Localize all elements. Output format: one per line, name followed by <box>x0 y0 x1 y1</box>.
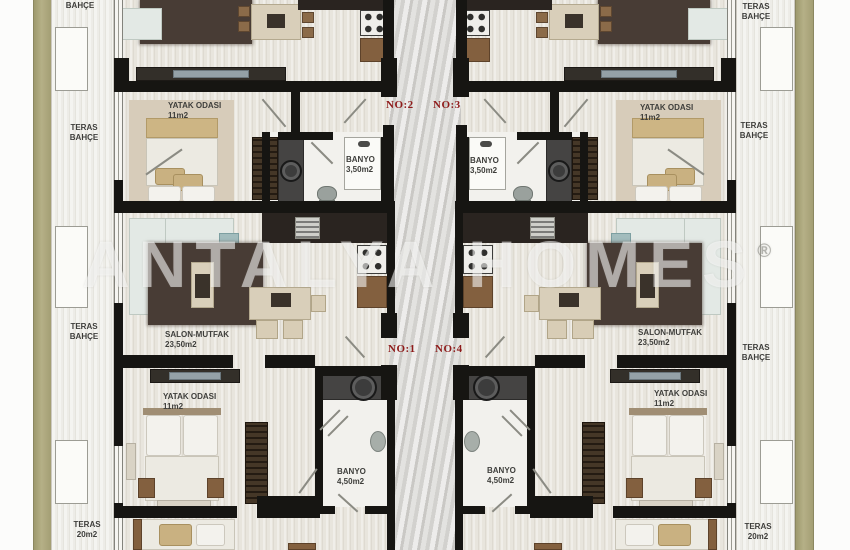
label-text: TERAS <box>734 343 778 353</box>
unit-number-2: NO:2 <box>386 99 416 111</box>
kitchen-counter <box>262 213 388 243</box>
label-text: YATAK ODASI <box>163 392 227 402</box>
label-bedroom-lower-left: YATAK ODASI11m2 <box>163 392 227 411</box>
label-terrace-bottom-left: TERAS20m2 <box>63 520 111 539</box>
label-text: BANYO <box>346 155 386 165</box>
pillow <box>635 186 668 202</box>
label-text: 3,50m2 <box>346 165 386 175</box>
stove <box>463 245 493 274</box>
main-divider-wall <box>114 201 395 213</box>
pillow <box>159 524 192 546</box>
serving-tray <box>640 274 655 298</box>
doormat <box>534 543 562 550</box>
interior-wall <box>278 132 333 140</box>
unit-number-3: NO:3 <box>433 99 463 111</box>
pillow <box>669 415 704 456</box>
shower-head <box>480 141 492 147</box>
mid-divider-wall <box>114 355 233 368</box>
stove <box>357 245 387 274</box>
window <box>114 213 123 303</box>
label-terrace-bottom-right: TERAS20m2 <box>734 522 782 541</box>
label-terrace-garden-right-lower: TERASBAHÇE <box>734 343 778 362</box>
corridor-wall <box>381 137 394 213</box>
label-text: TERAS <box>734 2 778 12</box>
desk <box>126 443 136 480</box>
kitchen-sink <box>530 217 555 239</box>
shower-head <box>358 141 370 147</box>
pillow <box>196 524 225 546</box>
interior-wall <box>580 132 588 202</box>
planter <box>760 27 793 91</box>
corner-wall <box>530 496 593 518</box>
kitchen-counter <box>462 213 588 243</box>
headboard <box>629 408 707 415</box>
corridor-wall <box>453 58 469 97</box>
pillow <box>183 415 218 456</box>
interior-wall <box>262 132 270 202</box>
bedroom-wall <box>613 506 736 518</box>
label-text: 3,50m2 <box>470 166 510 176</box>
kitchen-sink <box>295 217 320 239</box>
desk <box>714 443 724 480</box>
serving-tray <box>565 14 583 28</box>
unit-right-half <box>425 0 739 550</box>
bedroom-wall <box>114 506 237 518</box>
label-text: 20m2 <box>63 530 111 540</box>
corridor-wall <box>455 400 463 550</box>
label-text: TERAS <box>63 520 111 530</box>
corridor-wall <box>456 0 467 58</box>
floor-plan: ANTALYA HOMES® BAHÇE TERASBAHÇE TERASBAH… <box>0 0 850 550</box>
corridor-wall <box>383 125 394 137</box>
label-living-lower-right: SALON-MUTFAK23,50m2 <box>638 328 708 347</box>
unit-left-half <box>111 0 425 550</box>
wardrobe <box>245 422 268 504</box>
label-text: TERAS <box>732 121 776 131</box>
label-bath-lower-right: BANYO4,50m2 <box>487 466 527 485</box>
main-divider-wall <box>455 201 736 213</box>
terrace-bed-head <box>133 519 142 550</box>
label-text: BAHÇE <box>732 131 776 141</box>
label-text: 11m2 <box>640 113 704 123</box>
outer-wall <box>727 303 736 446</box>
tv <box>169 372 221 380</box>
label-text: 20m2 <box>734 532 782 542</box>
planter <box>760 226 793 308</box>
tv <box>173 70 249 78</box>
window <box>114 92 123 180</box>
bath-wall <box>456 366 535 376</box>
corridor-wall <box>456 137 469 213</box>
label-text: BAHÇE <box>62 332 106 342</box>
bath-wall <box>456 506 485 514</box>
kitchen-island <box>463 276 493 308</box>
bath-wall <box>315 366 323 514</box>
label-bedroom-upper-right: YATAK ODASI11m2 <box>640 103 704 122</box>
planter <box>55 226 88 308</box>
unit-number-1: NO:1 <box>388 343 418 355</box>
dining-chair <box>311 295 326 312</box>
label-bath-lower-left: BANYO4,50m2 <box>337 467 377 486</box>
label-text: SALON-MUTFAK <box>638 328 708 338</box>
kitchen-island <box>357 276 387 308</box>
dining-chair <box>283 320 303 339</box>
dining-chair <box>572 320 594 339</box>
pillow <box>669 186 702 202</box>
window <box>114 0 123 58</box>
dining-chair <box>238 21 250 32</box>
label-bath-upper-left: BANYO3,50m2 <box>346 155 386 174</box>
dining-chair <box>256 320 278 339</box>
bath-sink <box>548 160 570 182</box>
label-bedroom-lower-right: YATAK ODASI11m2 <box>654 389 718 408</box>
doormat <box>288 543 316 550</box>
dining-chair <box>600 21 612 32</box>
label-text: BANYO <box>487 466 527 476</box>
nightstand <box>695 478 712 498</box>
dining-chair <box>536 12 548 23</box>
dining-chair <box>600 6 612 17</box>
bath-wall <box>527 366 535 514</box>
corridor-wall <box>387 400 395 550</box>
towel-rail <box>370 431 386 452</box>
garden-strip-right <box>795 0 814 550</box>
interior-wall <box>291 92 300 137</box>
blanket <box>146 118 218 138</box>
label-garden-top-left: BAHÇE <box>57 1 103 11</box>
dining-chair <box>302 12 314 23</box>
nightstand <box>626 478 643 498</box>
nightstand <box>138 478 155 498</box>
label-text: TERAS <box>734 522 782 532</box>
nightstand <box>207 478 224 498</box>
planter <box>55 27 88 91</box>
label-terrace-garden-left-lower: TERASBAHÇE <box>62 322 106 341</box>
dining-chair <box>536 27 548 38</box>
pillow <box>148 186 181 202</box>
outer-wall <box>114 303 123 446</box>
label-text: 23,50m2 <box>165 340 235 350</box>
mid-divider-wall <box>265 355 315 368</box>
tv <box>601 70 677 78</box>
towel-rail <box>464 431 480 452</box>
label-text: YATAK ODASI <box>654 389 718 399</box>
pillow <box>658 524 691 546</box>
serving-tray <box>195 274 210 298</box>
mid-divider-wall <box>535 355 585 368</box>
interior-wall <box>459 81 736 92</box>
label-text: BANYO <box>470 156 510 166</box>
mid-divider-wall <box>617 355 736 368</box>
serving-tray <box>271 293 291 307</box>
corner-sofa <box>118 8 162 40</box>
wardrobe <box>582 422 605 504</box>
label-text: SALON-MUTFAK <box>165 330 235 340</box>
label-terrace-garden-left-upper: TERASBAHÇE <box>62 123 106 142</box>
label-bath-upper-right: BANYO3,50m2 <box>470 156 510 175</box>
label-terrace-garden-top-right: TERASBAHÇE <box>734 2 778 21</box>
corridor-wall <box>455 213 463 313</box>
bath-wall <box>315 366 394 376</box>
label-text: BAHÇE <box>734 12 778 22</box>
label-text: 4,50m2 <box>337 477 377 487</box>
label-text: BANYO <box>337 467 377 477</box>
label-text: 11m2 <box>654 399 718 409</box>
label-text: YATAK ODASI <box>640 103 704 113</box>
pillow <box>146 415 181 456</box>
tv <box>629 372 681 380</box>
corridor-wall <box>456 125 467 137</box>
dining-chair <box>302 27 314 38</box>
label-text: TERAS <box>62 123 106 133</box>
label-text: 11m2 <box>163 402 227 412</box>
corridor-wall <box>387 213 395 313</box>
unit-number-4: NO:4 <box>435 343 465 355</box>
corridor-wall <box>381 313 397 338</box>
label-text: BAHÇE <box>734 353 778 363</box>
window <box>114 518 123 550</box>
corridor-wall <box>381 58 397 97</box>
corridor-wall <box>383 0 394 58</box>
label-text: 4,50m2 <box>487 476 527 486</box>
window <box>114 446 123 503</box>
interior-wall <box>550 92 559 137</box>
pillow <box>182 186 215 202</box>
label-living-lower-left: SALON-MUTFAK23,50m2 <box>165 330 235 349</box>
label-text: BAHÇE <box>57 1 103 11</box>
bath-sink <box>350 374 377 401</box>
label-terrace-garden-right-upper: TERASBAHÇE <box>732 121 776 140</box>
label-bedroom-upper-left: YATAK ODASI11m2 <box>168 101 232 120</box>
label-text: 11m2 <box>168 111 232 121</box>
pillow <box>625 524 654 546</box>
label-text: BAHÇE <box>62 133 106 143</box>
bath-sink <box>473 374 500 401</box>
label-text: TERAS <box>62 322 106 332</box>
bath-wall <box>365 506 394 514</box>
dining-chair <box>547 320 567 339</box>
corner-sofa <box>688 8 732 40</box>
interior-wall <box>517 132 572 140</box>
dining-chair <box>238 6 250 17</box>
pillow <box>632 415 667 456</box>
planter <box>760 440 793 504</box>
serving-tray <box>267 14 285 28</box>
planter <box>55 440 88 504</box>
label-text: YATAK ODASI <box>168 101 232 111</box>
terrace-bed-head <box>708 519 717 550</box>
kitchen-counter <box>460 0 552 10</box>
window <box>727 213 736 303</box>
serving-tray <box>559 293 579 307</box>
corridor-wall <box>453 313 469 338</box>
label-text: 23,50m2 <box>638 338 708 348</box>
corner-wall <box>257 496 320 518</box>
garden-strip-left <box>33 0 52 550</box>
bath-sink <box>280 160 302 182</box>
window <box>727 446 736 503</box>
kitchen-counter <box>298 0 390 10</box>
interior-wall <box>114 81 391 92</box>
dining-chair <box>524 295 539 312</box>
